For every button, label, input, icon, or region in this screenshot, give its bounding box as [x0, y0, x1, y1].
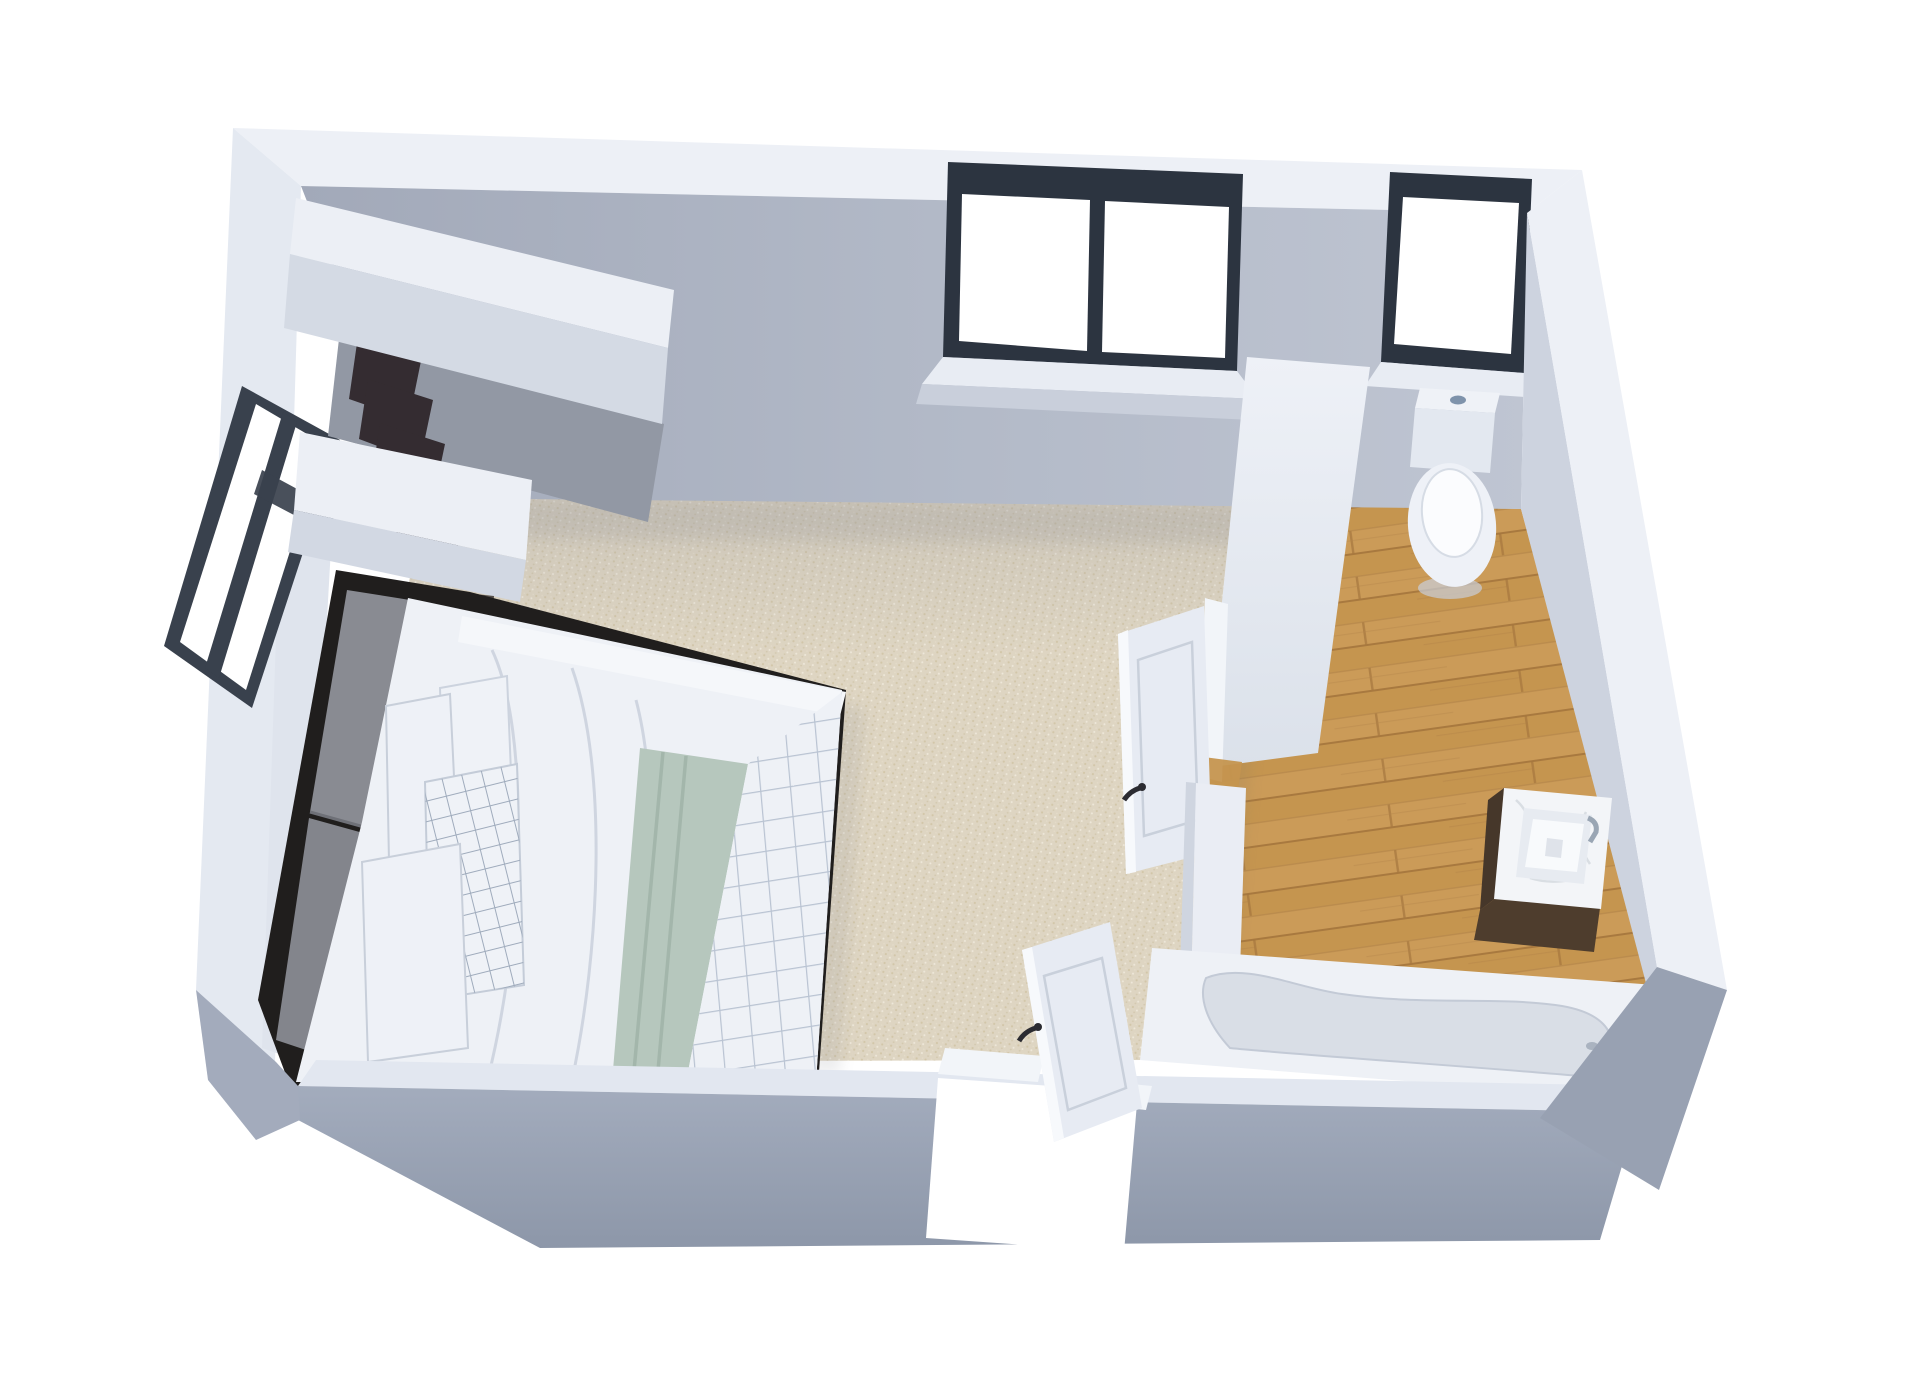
- floor-plan-canvas: [0, 0, 1920, 1377]
- bedroom-window-pane-right: [1102, 201, 1229, 358]
- toilet-flush-button: [1450, 396, 1466, 405]
- entry-door-handle-rose: [1034, 1023, 1042, 1031]
- bedroom-window-pane-left: [959, 194, 1090, 351]
- bedroom-window: [916, 162, 1258, 420]
- floorplan-3d-svg: [0, 0, 1920, 1377]
- backwall-floor-shadow: [430, 500, 1245, 545]
- bathroom-window-pane: [1394, 197, 1519, 354]
- sink-drain: [1545, 838, 1563, 858]
- white-pillow-lower: [362, 844, 468, 1062]
- bathroom-door-handle-rose: [1138, 783, 1146, 791]
- bathroom-window: [1365, 172, 1540, 398]
- toilet-tank-front: [1410, 408, 1495, 473]
- vanity-sink: [1474, 788, 1612, 952]
